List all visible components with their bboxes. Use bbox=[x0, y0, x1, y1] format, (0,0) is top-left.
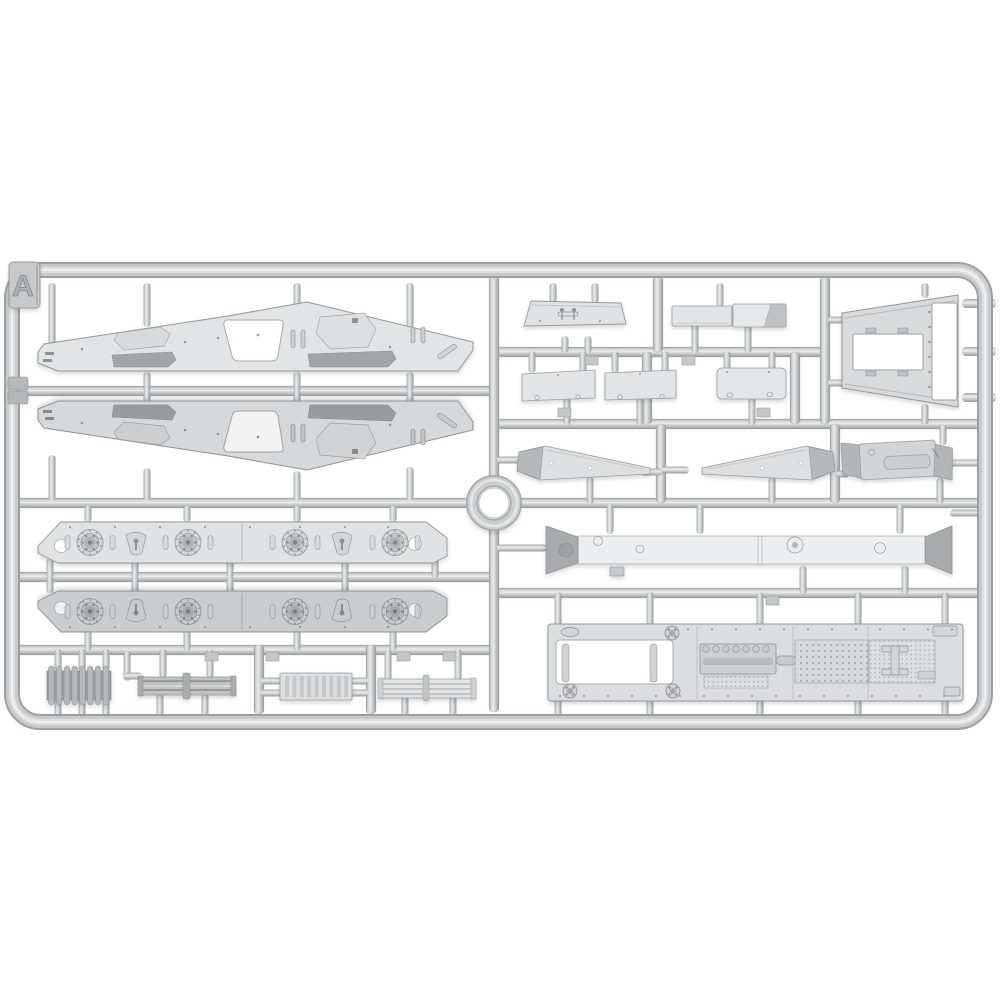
sprue-gate bbox=[390, 506, 397, 522]
part-slat-assembly-light bbox=[378, 675, 476, 701]
runner bbox=[497, 588, 984, 598]
part-flat-panel-a bbox=[672, 306, 732, 326]
runner bbox=[820, 276, 830, 424]
part-hull-roof-beam bbox=[546, 526, 952, 576]
sprue-gate bbox=[157, 694, 164, 716]
part-slat-assembly-dark bbox=[138, 673, 236, 699]
grille-rib bbox=[300, 676, 304, 697]
sprue-gate bbox=[49, 455, 56, 500]
grille-rib bbox=[88, 666, 94, 705]
part-mudguard-blade-right bbox=[702, 446, 835, 480]
sprue-gate bbox=[342, 576, 349, 593]
part-hull-side-upper bbox=[38, 522, 447, 563]
sprue-gate bbox=[902, 566, 909, 594]
sprue-gate bbox=[261, 690, 282, 697]
sprue-gate bbox=[47, 576, 54, 593]
sprue-gate bbox=[745, 324, 752, 353]
sprue-gate bbox=[47, 558, 54, 578]
sprue-gate bbox=[662, 351, 669, 373]
grille-rib bbox=[315, 676, 319, 697]
runner bbox=[514, 498, 984, 508]
runner bbox=[653, 276, 663, 352]
sprue-gate bbox=[350, 678, 369, 685]
sprue-gate bbox=[497, 457, 521, 464]
sprue-gate bbox=[450, 696, 457, 716]
runner bbox=[16, 498, 474, 508]
sprue-gate bbox=[202, 694, 209, 716]
photo-background: A bbox=[0, 0, 1000, 1000]
part-radiator-grille-dark bbox=[47, 666, 111, 705]
grille-rib bbox=[80, 666, 86, 705]
sprue-gate bbox=[922, 404, 929, 425]
part-number-tab bbox=[766, 596, 779, 605]
sprue-gate bbox=[407, 467, 414, 500]
runner bbox=[790, 352, 800, 424]
sprue-gate bbox=[144, 372, 151, 392]
center-ring bbox=[471, 480, 517, 526]
sprue-letter-tab: A bbox=[9, 262, 40, 308]
grille-rib bbox=[329, 676, 333, 697]
sprue-gate bbox=[724, 351, 731, 370]
grille-rib bbox=[72, 666, 78, 705]
sprue-photo: A bbox=[0, 0, 1000, 1000]
sprue-gate bbox=[294, 471, 301, 500]
sprue-gate bbox=[144, 283, 151, 327]
runner bbox=[16, 386, 494, 396]
part-glacis-panel bbox=[524, 301, 626, 326]
sprue-gate bbox=[261, 678, 282, 685]
part-number-tab bbox=[266, 652, 279, 661]
grille-rib bbox=[64, 666, 70, 705]
sprue-gate bbox=[769, 477, 776, 504]
part-number-tab bbox=[558, 408, 571, 417]
sprue-gate bbox=[612, 351, 619, 373]
grille-rib bbox=[344, 676, 348, 697]
sprue-gate bbox=[942, 592, 949, 626]
grille-rib bbox=[56, 666, 62, 705]
part-number-tab bbox=[682, 356, 695, 365]
grille-rib bbox=[292, 676, 296, 697]
engine-cylinder-detail bbox=[703, 646, 710, 653]
part-muffler-box bbox=[841, 437, 954, 486]
runner bbox=[489, 276, 499, 482]
sprue-gate bbox=[757, 592, 764, 626]
sprue-gate bbox=[555, 592, 562, 626]
sprue-gate bbox=[407, 372, 414, 392]
sprue-gate bbox=[607, 504, 614, 534]
sprue-gate bbox=[692, 324, 699, 353]
sprue-gate bbox=[951, 460, 981, 467]
frame-knob bbox=[8, 391, 28, 404]
sprue-gate bbox=[637, 397, 644, 425]
sprue-gate bbox=[497, 545, 547, 552]
part-small-hatch-panel-1 bbox=[522, 370, 595, 401]
grille-rib bbox=[103, 666, 109, 705]
engine-cylinder-detail bbox=[733, 646, 740, 653]
engine-cylinder-detail bbox=[753, 646, 760, 653]
part-mudguard-blade-left bbox=[517, 446, 650, 480]
part-radiator-grille-light bbox=[280, 673, 352, 700]
sprue-gate bbox=[922, 283, 929, 298]
sprue-gate bbox=[749, 397, 756, 425]
sprue-gate bbox=[529, 351, 536, 373]
runner bbox=[656, 424, 666, 503]
sprue-gate bbox=[940, 425, 947, 445]
sprue-gate bbox=[661, 467, 689, 474]
sprue-gate bbox=[937, 478, 944, 504]
sprue-gate bbox=[550, 283, 557, 303]
sprue-gate bbox=[144, 468, 151, 500]
sprue-gate bbox=[184, 506, 191, 522]
part-small-hatch-panel-2 bbox=[605, 370, 676, 400]
grille-rib bbox=[307, 676, 311, 697]
sprue-gate bbox=[562, 336, 569, 353]
sprue-letter: A bbox=[12, 270, 34, 303]
sprue-gate bbox=[294, 372, 301, 392]
sprue-gate bbox=[950, 510, 981, 517]
part-number-tab bbox=[443, 652, 456, 661]
sprue-gate bbox=[769, 351, 776, 370]
part-number-tab bbox=[585, 356, 598, 365]
part-number-tab bbox=[757, 408, 770, 417]
grille-rib bbox=[49, 666, 55, 705]
part-flat-panel-b bbox=[733, 304, 786, 327]
part-hull-side-lower bbox=[38, 591, 447, 632]
sprue-gate bbox=[385, 649, 392, 681]
grille-rib bbox=[285, 676, 289, 697]
engine-cylinder-detail bbox=[763, 646, 770, 653]
grille-rib bbox=[95, 666, 101, 705]
sprue-gate bbox=[800, 566, 807, 594]
runner bbox=[16, 572, 494, 582]
sprue-gate bbox=[160, 649, 167, 678]
sprue-gate bbox=[49, 283, 56, 349]
part-small-hatch-panel-3 bbox=[717, 368, 786, 399]
runner bbox=[489, 524, 499, 712]
sprue-gate bbox=[585, 336, 592, 353]
grille-rib bbox=[337, 676, 341, 697]
sprue-gate bbox=[897, 504, 904, 534]
engine-cylinder-detail bbox=[743, 646, 750, 653]
grille-rib bbox=[322, 676, 326, 697]
part-number-tab bbox=[397, 652, 410, 661]
part-hull-floor-plate bbox=[548, 624, 963, 701]
sprue-gate bbox=[647, 592, 654, 626]
sprue-gate bbox=[717, 283, 724, 307]
engine-cylinder-detail bbox=[713, 646, 720, 653]
frame-knob bbox=[8, 377, 28, 390]
sprue-gate bbox=[350, 690, 369, 697]
sprue-gate bbox=[697, 504, 704, 534]
sprue-gate bbox=[592, 283, 599, 303]
sprue-gate bbox=[855, 592, 862, 626]
sprue-gate bbox=[132, 576, 139, 593]
sprue-gate bbox=[227, 576, 234, 593]
part-fender-lower bbox=[38, 401, 473, 470]
part-number-tab bbox=[205, 652, 218, 661]
sprue-gate bbox=[294, 506, 301, 522]
engine-cylinder-detail bbox=[723, 646, 730, 653]
sprue-gate bbox=[402, 696, 409, 716]
sprue-gate bbox=[587, 477, 594, 504]
sprue-gate bbox=[85, 506, 92, 522]
part-radiator-frame bbox=[842, 295, 958, 407]
